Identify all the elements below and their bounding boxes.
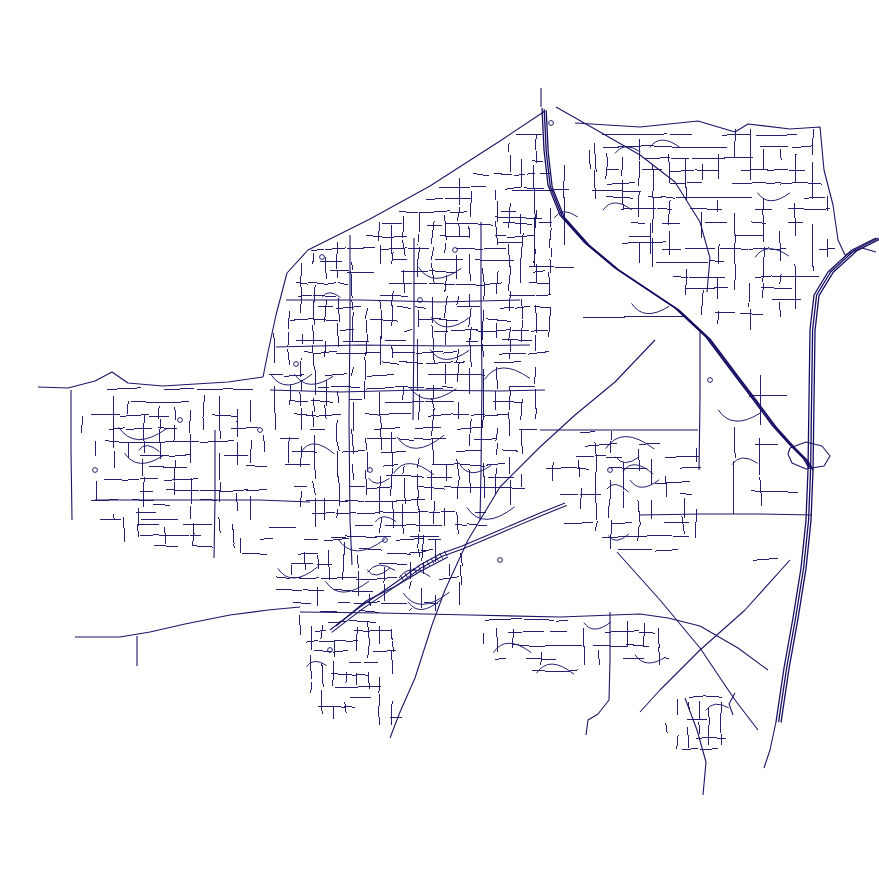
map-page <box>0 0 879 884</box>
road-network-svg <box>0 0 879 884</box>
road-network-map <box>0 0 879 884</box>
